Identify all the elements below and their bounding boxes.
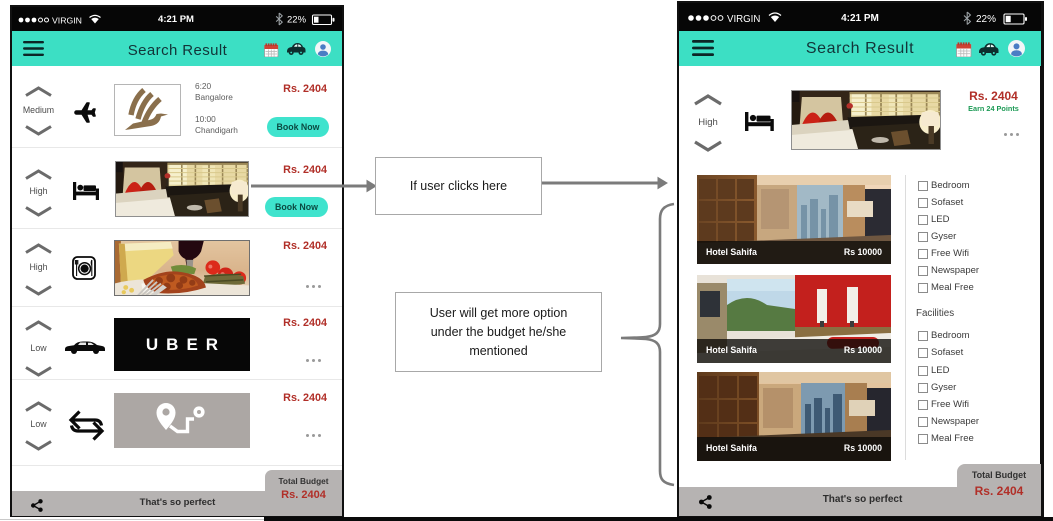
svg-text:22%: 22% [976,14,996,25]
svg-text:22%: 22% [287,15,307,26]
svg-text:VIRGIN: VIRGIN [52,15,82,25]
svg-text:VIRGIN: VIRGIN [727,14,760,25]
